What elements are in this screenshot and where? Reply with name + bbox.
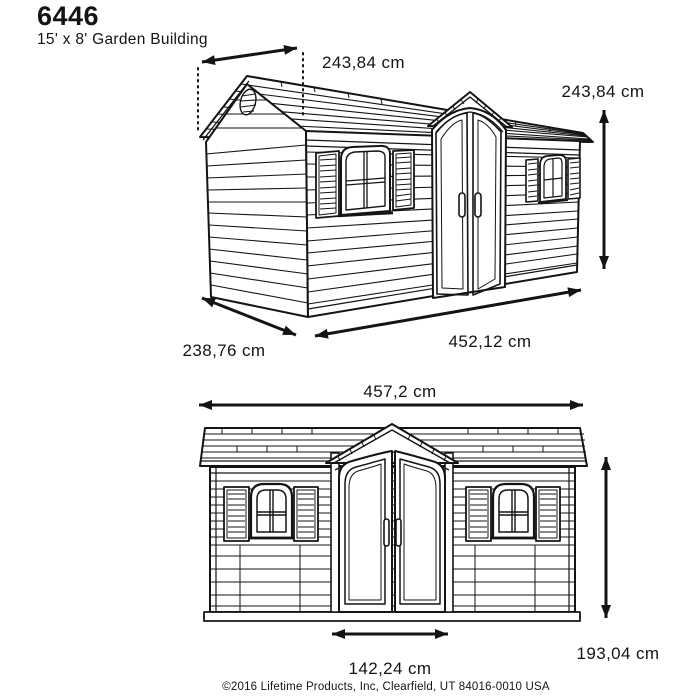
copyright-text: ©2016 Lifetime Products, Inc, Clearfield… [222,681,550,693]
dim-label-height: 243,84 cm [562,82,645,101]
front-base-skirt [204,612,580,621]
dim-door-width: 142,24 cm [332,634,448,678]
perspective-right-window [526,155,580,203]
shed-diagram: 243,84 cm 243,84 cm 238,76 cm 452,12 cm [0,0,700,700]
door-handle-icon [384,519,389,546]
door-handle-icon [459,193,465,217]
dim-label-depth: 238,76 cm [183,341,266,360]
dim-label-door-width: 142,24 cm [349,659,432,678]
dim-label-front-width: 457,2 cm [363,382,436,401]
perspective-doors [428,92,512,298]
dim-front-height: 193,04 cm [577,457,660,663]
dim-front-width: 457,2 cm [199,382,583,405]
front-doors [326,424,458,612]
front-right-window [466,484,560,541]
dim-label-front-height: 193,04 cm [577,644,660,663]
door-handle-icon [396,519,401,546]
door-handle-icon [475,193,481,217]
dim-label-length: 452,12 cm [449,332,532,351]
front-left-window [224,484,318,541]
perspective-front-window [316,146,414,218]
dim-label-roof-width: 243,84 cm [322,53,405,72]
front-view [200,424,587,621]
perspective-view [200,76,593,317]
